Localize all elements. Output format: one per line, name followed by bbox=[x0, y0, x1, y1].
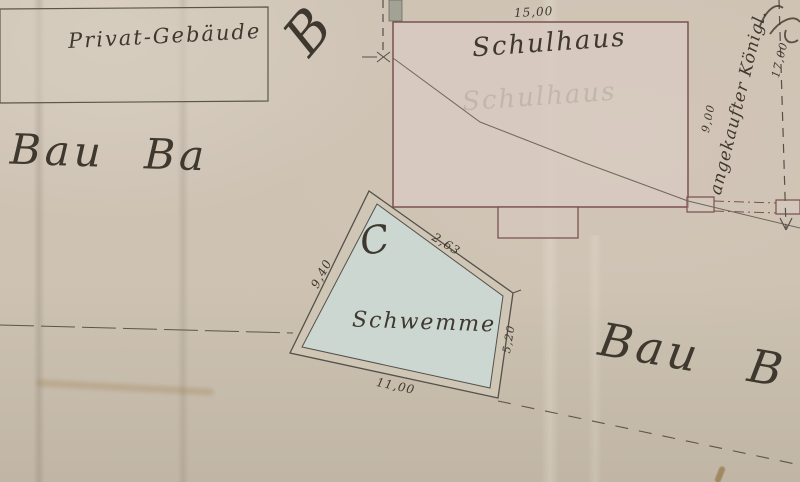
survey-cross-mark bbox=[362, 52, 390, 62]
plan-linework bbox=[0, 0, 800, 482]
plan-canvas: Privat-Gebäude Schulhaus Schulhaus 15,00… bbox=[0, 0, 800, 482]
wall-stub bbox=[389, 0, 402, 21]
school-building-outline bbox=[393, 22, 688, 207]
school-annex-outline bbox=[498, 207, 578, 238]
property-line-dashed bbox=[0, 325, 293, 333]
property-line-dashed bbox=[498, 401, 800, 465]
corner-tick bbox=[513, 290, 521, 293]
planned-wall-dashed bbox=[714, 211, 776, 213]
pier-outline bbox=[776, 200, 800, 214]
planned-wall-dashed bbox=[714, 201, 776, 203]
private-building-outline bbox=[0, 7, 268, 103]
